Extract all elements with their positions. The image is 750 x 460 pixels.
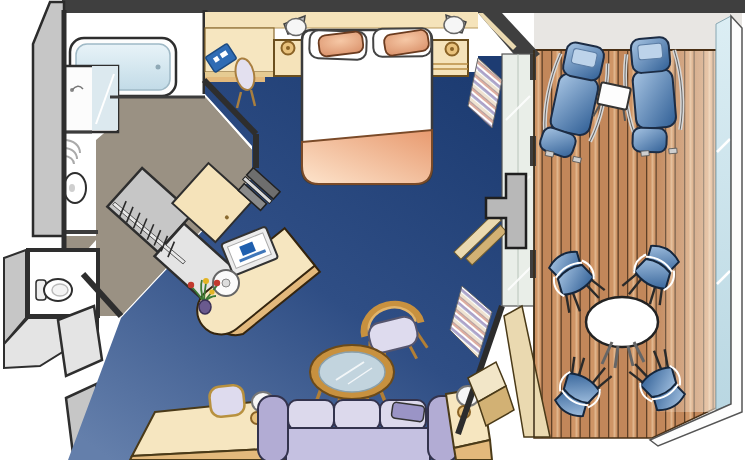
sofa-arm-left xyxy=(258,396,288,460)
window-post xyxy=(530,136,536,166)
sofa-back-cushion xyxy=(334,400,380,430)
sofa-seat xyxy=(286,428,430,460)
counter-molding-2 xyxy=(205,77,265,82)
flower-red xyxy=(188,282,194,288)
floorplan-stage xyxy=(0,0,750,460)
throw-pillow xyxy=(391,402,425,422)
railing-glass xyxy=(716,16,731,410)
top-wall xyxy=(62,0,745,13)
left-outer-wall xyxy=(33,2,64,236)
window-post xyxy=(530,54,536,80)
lamp-base-dot xyxy=(450,47,454,51)
table-top xyxy=(597,82,631,110)
flower-yellow xyxy=(209,289,214,294)
vase xyxy=(199,300,211,314)
flower-red xyxy=(214,280,220,286)
flower-yellow xyxy=(203,278,209,284)
window-post xyxy=(530,250,536,278)
floorplan-illustration xyxy=(0,0,750,460)
bench-chair-back xyxy=(209,384,246,417)
bathtub-drain xyxy=(156,65,161,70)
table-glass xyxy=(319,352,385,392)
sofa-back-cushion xyxy=(288,400,334,430)
pillow-inner xyxy=(318,31,364,57)
pillow-right xyxy=(373,28,431,57)
pillow-left xyxy=(309,29,367,60)
table-top xyxy=(586,297,658,347)
toilet-seat xyxy=(52,284,68,296)
stool-center xyxy=(222,279,230,287)
sofa xyxy=(258,396,458,460)
lamp-shade xyxy=(444,17,464,34)
lamp-base-dot xyxy=(286,46,290,50)
cabinetry-band xyxy=(205,12,478,28)
queen-bed xyxy=(302,28,432,184)
sink-drain xyxy=(69,184,75,192)
